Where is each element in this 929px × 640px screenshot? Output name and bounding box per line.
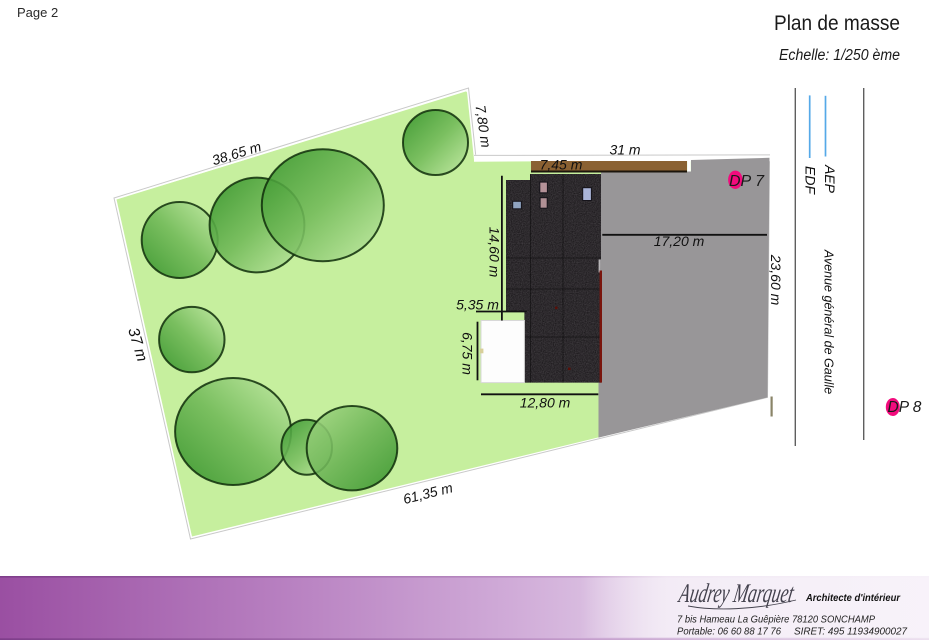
svg-text:7,45 m: 7,45 m	[540, 157, 583, 173]
svg-text:Plan de masse: Plan de masse	[774, 12, 900, 35]
svg-text:5,35 m: 5,35 m	[456, 297, 499, 313]
svg-text:Echelle: 1/250 ème: Echelle: 1/250 ème	[779, 47, 900, 64]
svg-text:23,60 m: 23,60 m	[768, 254, 784, 306]
svg-text:Page 2: Page 2	[17, 5, 58, 20]
svg-text:AEP: AEP	[822, 164, 838, 194]
svg-text:12,80 m: 12,80 m	[520, 395, 571, 411]
svg-text:DP 8: DP 8	[888, 399, 922, 416]
svg-text:Portable: 06 60 88 17 76: Portable: 06 60 88 17 76	[677, 626, 781, 638]
svg-text:6,75 m: 6,75 m	[460, 332, 476, 375]
svg-text:14,60 m: 14,60 m	[487, 227, 503, 278]
svg-text:31 m: 31 m	[609, 142, 640, 158]
svg-text:EDF: EDF	[803, 166, 819, 195]
svg-text:SIRET: 495 11934900027: SIRET: 495 11934900027	[794, 626, 908, 638]
svg-text:Avenue général de Gaulle: Avenue général de Gaulle	[822, 249, 836, 394]
svg-text:17,20 m: 17,20 m	[654, 233, 705, 249]
svg-text:7 bis Hameau La Guêpière 78120: 7 bis Hameau La Guêpière 78120 SONCHAMP	[677, 614, 875, 626]
svg-text:Architecte d'intérieur: Architecte d'intérieur	[805, 592, 901, 604]
svg-text:DP 7: DP 7	[729, 173, 765, 190]
